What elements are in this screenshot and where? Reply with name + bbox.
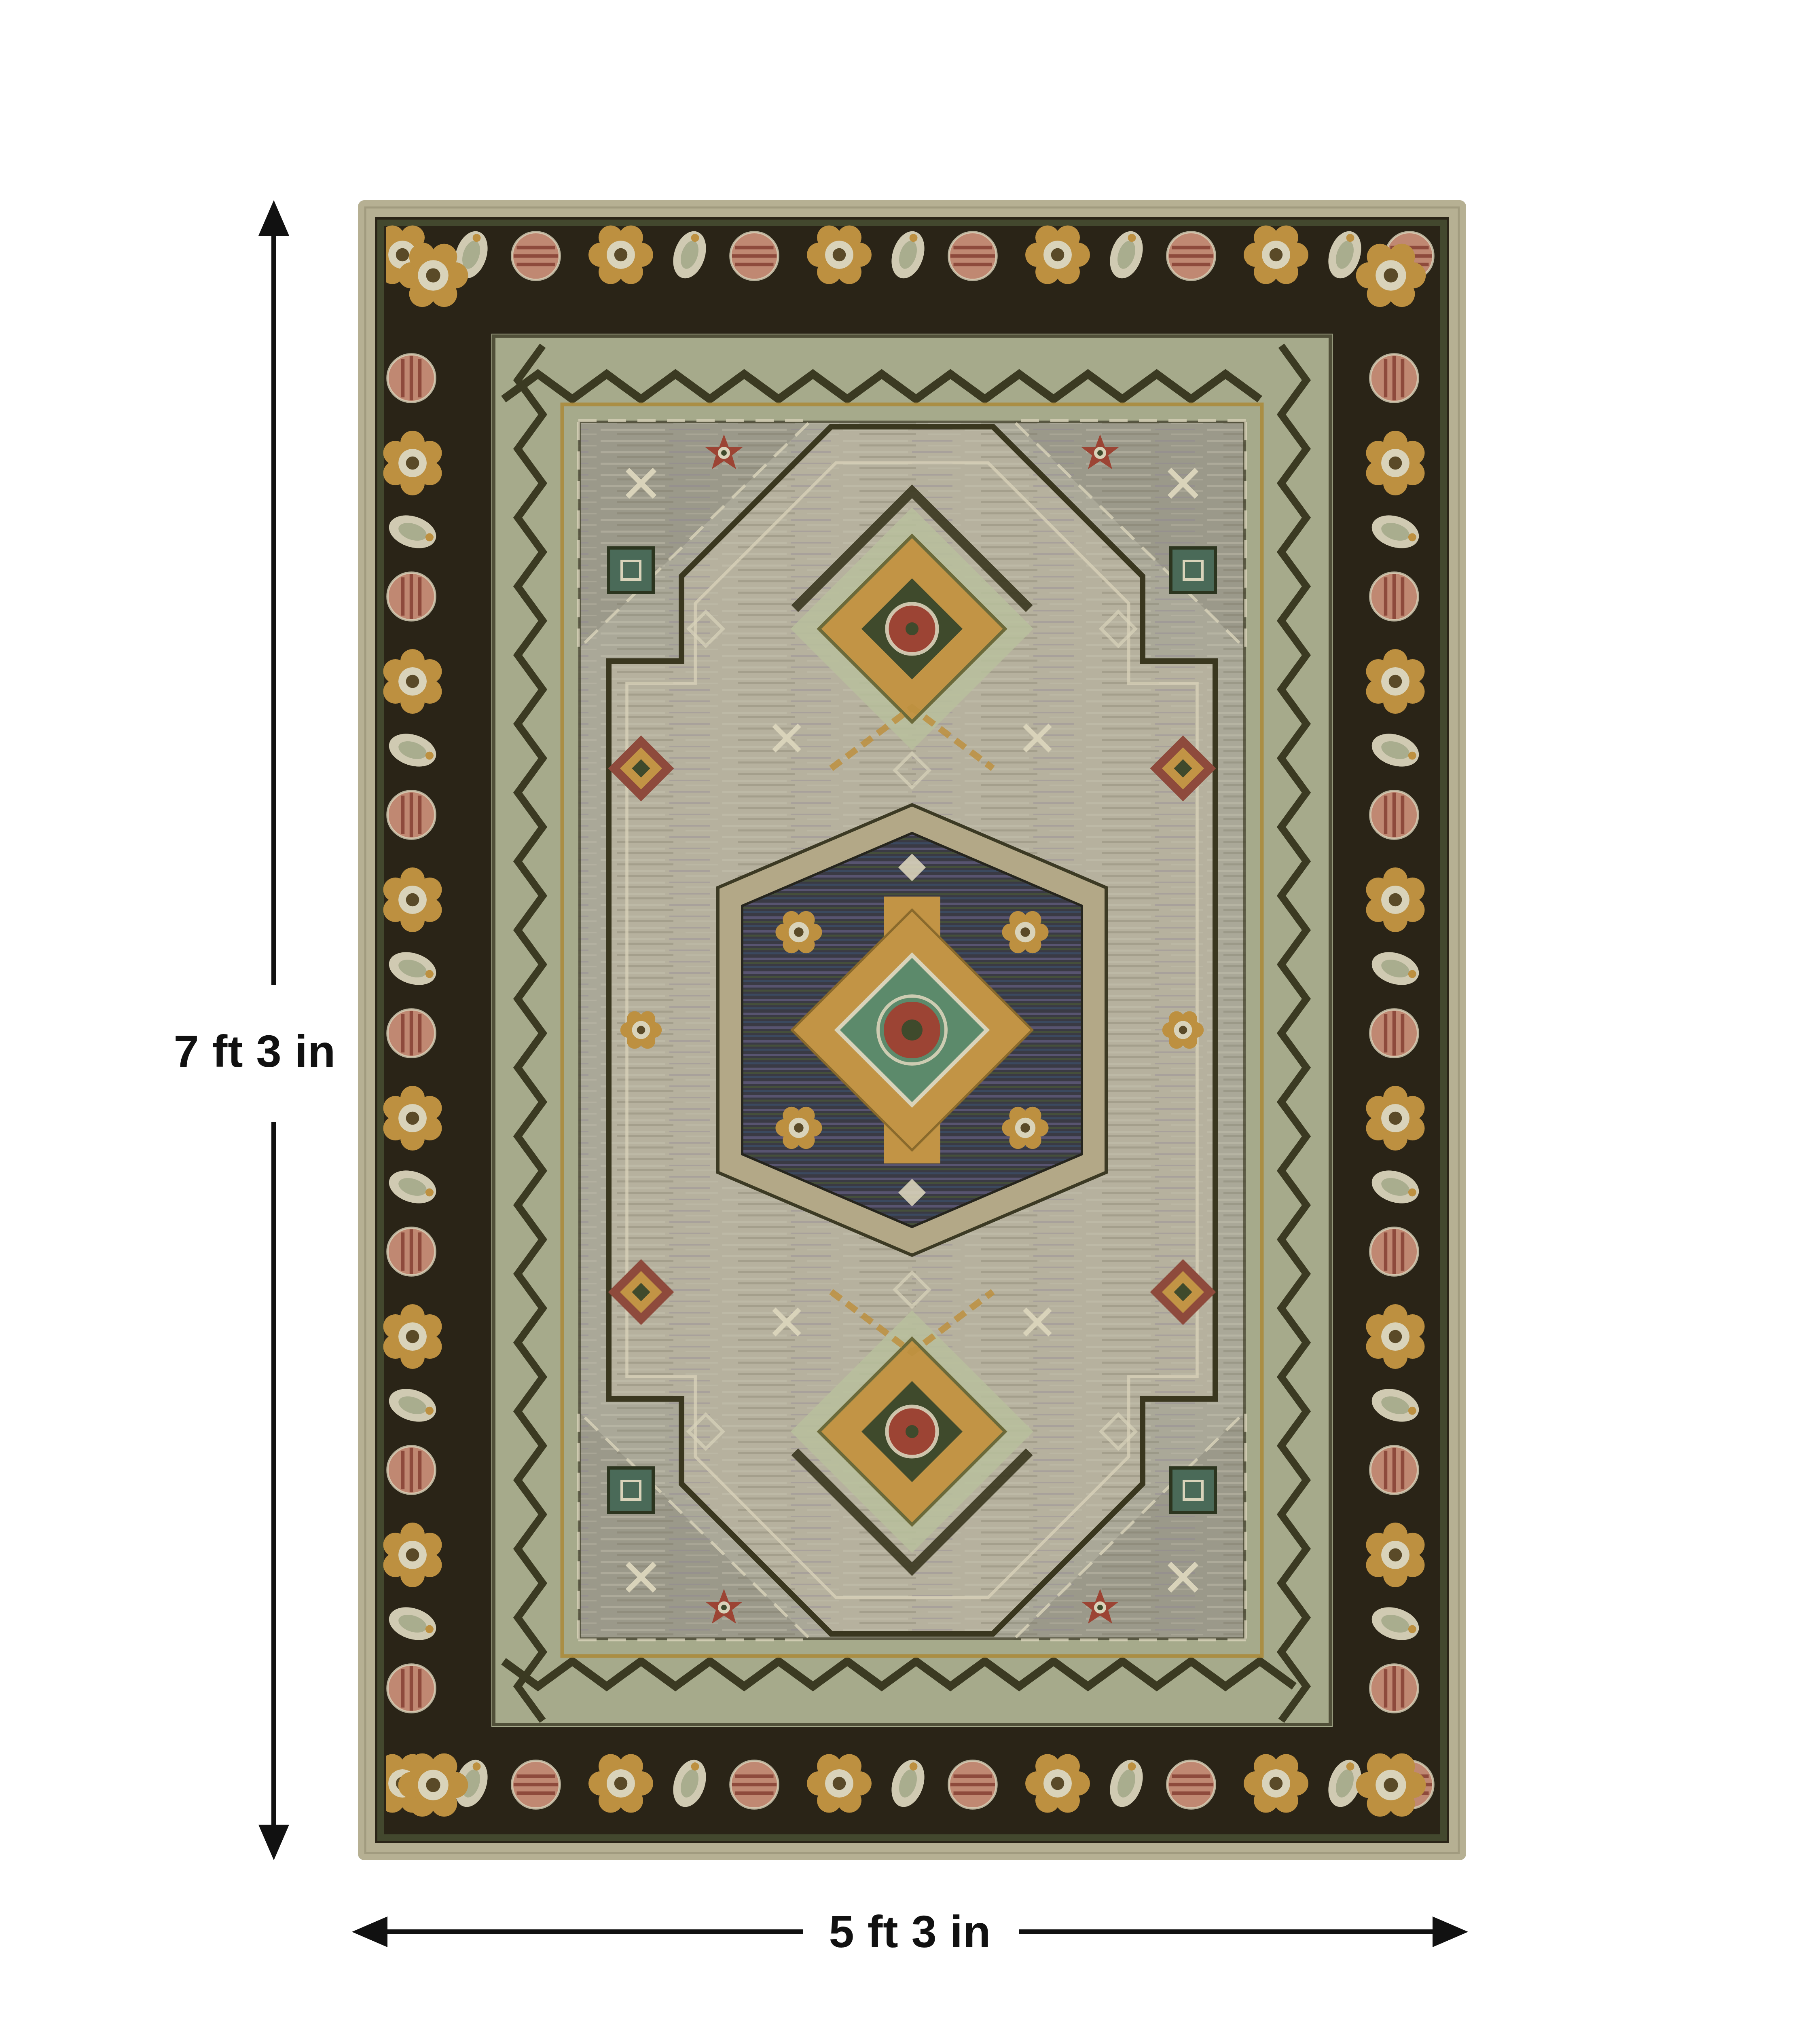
height-dimension-label: 7 ft 3 in <box>117 1029 392 1074</box>
arrow-right-icon <box>1433 1916 1468 1947</box>
height-dimension-line-lower <box>271 1122 276 1828</box>
width-dimension-line-right <box>1019 1929 1436 1934</box>
arrow-left-icon <box>352 1916 387 1947</box>
width-dimension-label: 5 ft 3 in <box>772 1909 1048 1954</box>
arrow-up-icon <box>258 200 289 236</box>
rug-image <box>358 200 1466 1860</box>
height-dimension-line-upper <box>271 233 276 985</box>
product-dimension-diagram: 7 ft 3 in 5 ft 3 in <box>0 0 1820 2022</box>
width-dimension-line-left <box>384 1929 803 1934</box>
arrow-down-icon <box>258 1825 289 1860</box>
